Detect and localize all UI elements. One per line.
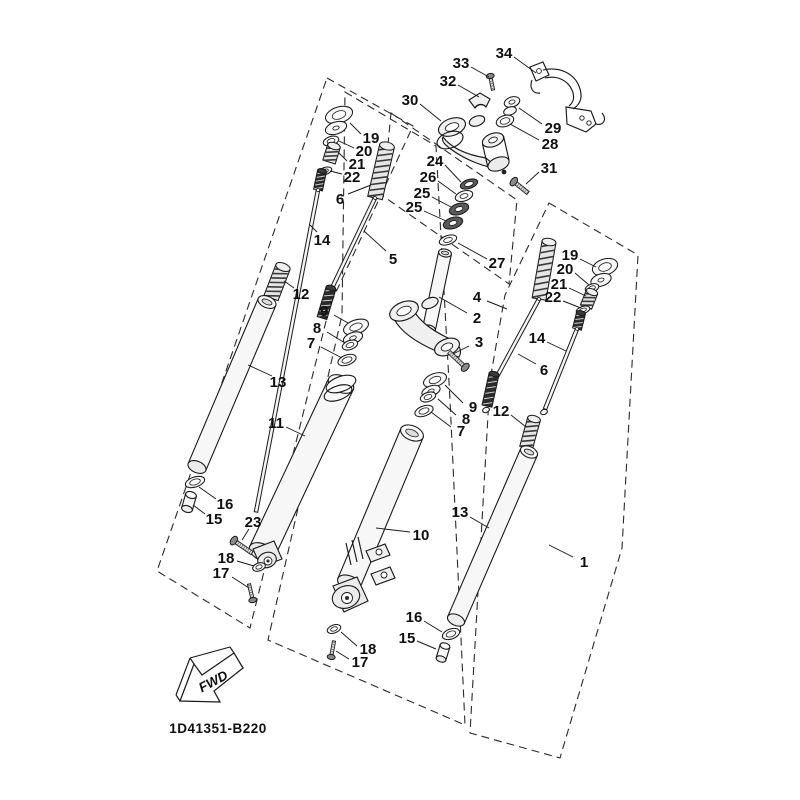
- exploded-diagram: FWD 1D41351-B220 34333230292831192021222…: [0, 0, 800, 800]
- leader-line: [432, 197, 451, 207]
- part-label: 9: [320, 303, 328, 320]
- leader-line: [471, 67, 489, 77]
- race-26: [454, 188, 474, 203]
- leader-line: [549, 545, 573, 557]
- part-label: 6: [540, 362, 548, 379]
- oil-seal-7-right: [413, 403, 434, 419]
- part-label: 29: [545, 120, 562, 137]
- leader-line: [511, 415, 526, 427]
- leader-line: [199, 487, 216, 499]
- leader-line: [350, 123, 361, 134]
- bearing-25-upper: [448, 201, 470, 218]
- part-label: 22: [344, 169, 361, 186]
- leader-line: [364, 231, 386, 251]
- fwd-arrow: FWD: [176, 647, 243, 702]
- handle-holder-32: [469, 93, 490, 108]
- leader-line: [339, 141, 354, 148]
- part-label: 34: [496, 45, 513, 62]
- part-label: 14: [529, 330, 546, 347]
- part-label: 6: [336, 191, 344, 208]
- rod-tip-right: [482, 406, 490, 413]
- bushing-15-right: [435, 642, 450, 664]
- outer-tube-10: [335, 422, 426, 595]
- washer-16-left: [184, 474, 206, 490]
- part-label: 17: [352, 654, 369, 671]
- leader-line: [348, 185, 371, 194]
- leader-line: [193, 505, 205, 514]
- part-label: 23: [245, 514, 262, 531]
- leader-line: [470, 517, 489, 528]
- leader-line: [248, 365, 272, 376]
- bolt-31: [508, 176, 531, 197]
- rebound-spring-12-left: [264, 261, 291, 301]
- part-label: 16: [406, 609, 423, 626]
- part-label: 17: [213, 565, 230, 582]
- cap-29: [503, 95, 522, 117]
- steering-stem-2: [422, 248, 452, 334]
- part-label: 14: [314, 232, 331, 249]
- part-label: 13: [452, 504, 469, 521]
- leader-line: [424, 621, 442, 632]
- fork-cap-left: [323, 103, 355, 137]
- leader-line: [417, 641, 436, 649]
- inner-tube-13-right: [446, 443, 540, 628]
- leader-line: [330, 171, 342, 174]
- inner-tube-13-left: [186, 293, 278, 476]
- part-label: 3: [475, 334, 483, 351]
- oil-seal-7-left: [336, 352, 357, 368]
- leader-line: [445, 385, 463, 403]
- part-label: 10: [413, 527, 430, 544]
- ring-28: [495, 113, 516, 129]
- leader-line: [439, 297, 467, 313]
- bearing-stack: [438, 177, 479, 247]
- rod-bottom-coil-right: [482, 370, 499, 407]
- leader-line: [424, 211, 446, 221]
- leader-line: [438, 181, 456, 194]
- leader-line: [420, 104, 441, 121]
- leader-line: [237, 561, 254, 566]
- leader-line: [327, 332, 345, 343]
- part-label: 30: [402, 92, 419, 109]
- parts-diagram-page: FWD 1D41351-B220 34333230292831192021222…: [0, 0, 800, 800]
- part-label: 25: [406, 199, 423, 216]
- part-label: 15: [206, 511, 223, 528]
- leader-line: [431, 412, 451, 427]
- rod-top-coil-left: [314, 168, 327, 191]
- part-label: 15: [399, 630, 416, 647]
- part-label: 28: [542, 136, 559, 153]
- rod-14-tip-right: [540, 408, 548, 415]
- leader-line: [458, 85, 479, 97]
- washer-16-right: [441, 626, 461, 642]
- damper-rod-14-right: [543, 327, 579, 410]
- part-label: 32: [440, 73, 457, 90]
- leader-line: [526, 172, 539, 184]
- leader-line: [514, 57, 536, 73]
- leader-line: [575, 273, 589, 285]
- part-label: 11: [268, 415, 284, 432]
- damper-rod-5-mid: [329, 196, 377, 291]
- part-label: 1: [580, 554, 588, 571]
- leader-line: [580, 259, 596, 267]
- part-label: 33: [453, 55, 470, 72]
- leader-line: [341, 632, 357, 646]
- part-label: 31: [541, 160, 558, 177]
- part-label: 7: [457, 423, 465, 440]
- part-label: 13: [270, 374, 287, 391]
- leader-line: [519, 108, 542, 124]
- leader-line: [569, 288, 586, 296]
- bolt-33: [486, 73, 497, 91]
- under-bracket-2: [387, 295, 462, 359]
- leader-line: [336, 651, 349, 659]
- rod-top-coil-right: [573, 310, 586, 330]
- leader-line: [445, 165, 461, 182]
- part-label: 12: [293, 286, 310, 303]
- part-label: 2: [473, 310, 481, 327]
- leader-line: [232, 577, 249, 588]
- washer-18-mid: [326, 623, 342, 635]
- part-label: 22: [545, 289, 562, 306]
- part-label: 26: [420, 169, 437, 186]
- rebound-spring-12-right: [520, 414, 541, 450]
- leader-line: [438, 399, 456, 415]
- wire-bracket-34: [530, 62, 604, 132]
- part-label: 12: [493, 403, 510, 420]
- part-label: 4: [473, 289, 482, 306]
- leader-line: [339, 153, 347, 161]
- part-label: 7: [307, 335, 315, 352]
- washer-24: [459, 177, 479, 191]
- leader-line: [510, 124, 539, 140]
- leader-line: [458, 243, 487, 259]
- bolt-17-mid: [327, 640, 338, 660]
- leader-line: [563, 301, 581, 308]
- leader-line: [487, 301, 507, 309]
- part-label: 27: [489, 255, 506, 272]
- leader-line: [547, 342, 566, 351]
- leader-line: [321, 347, 342, 358]
- part-label: 24: [427, 153, 444, 170]
- bearing-25-lower: [442, 215, 464, 232]
- leader-line: [518, 354, 536, 364]
- drawing-code: 1D41351-B220: [169, 721, 267, 736]
- leader-line: [286, 427, 305, 436]
- part-label: 5: [389, 251, 397, 268]
